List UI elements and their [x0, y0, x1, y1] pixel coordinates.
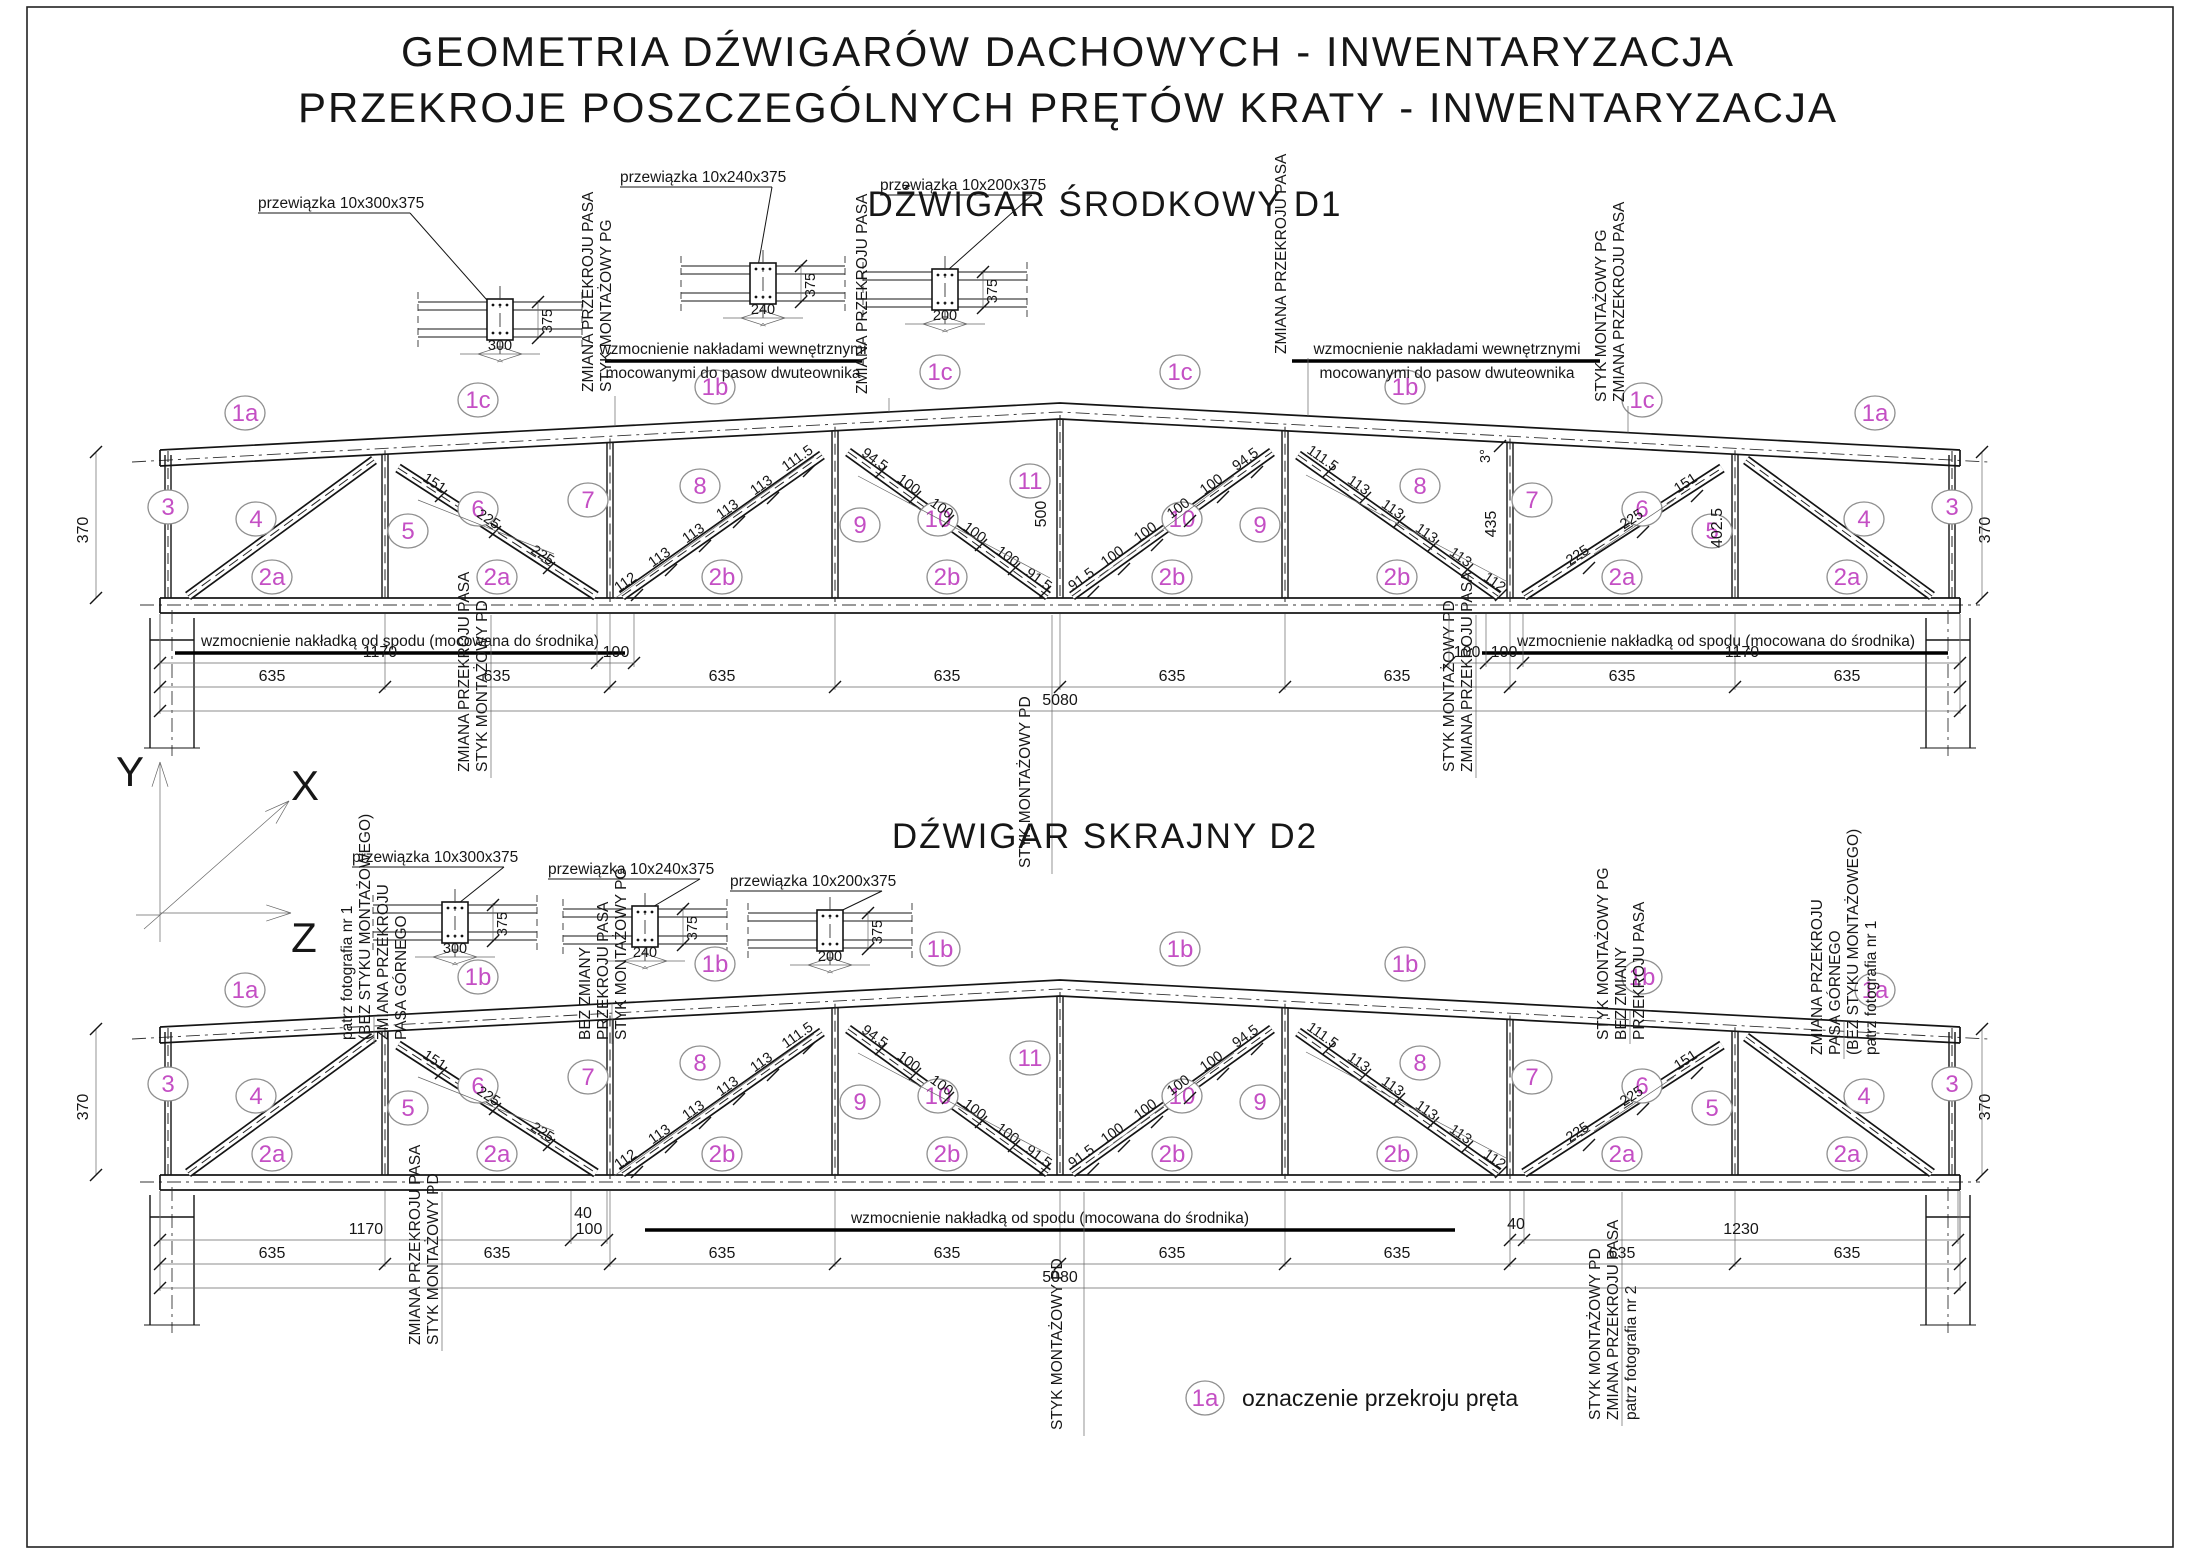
arrowhead: [497, 354, 522, 362]
reinforcement-note: mocowanymi do pasow dwuteownika: [605, 365, 860, 382]
dim-label: 635: [1609, 668, 1636, 685]
section-mark-label: 2b: [934, 564, 961, 591]
splice-note-line: PRZEKROJU PASA: [595, 901, 612, 1040]
dim-label: 100: [1098, 543, 1127, 570]
splice-note-line: (BEZ STYKU MONTAŻOWEGO): [356, 814, 374, 1040]
section-mark-label: 4: [249, 506, 262, 533]
bolt-dot: [506, 304, 509, 307]
section-mark-label: 2a: [259, 564, 286, 591]
total-span-dim: 5080: [1042, 692, 1078, 709]
batten-width-dim: 240: [633, 945, 657, 961]
section-mark-label: 5: [401, 518, 414, 545]
splice-note-line: STYK MONTAŻOWY PG: [612, 867, 630, 1040]
dim-label: 635: [484, 668, 511, 685]
section-mark-label: 9: [853, 512, 866, 539]
dim-label: 635: [259, 1245, 286, 1262]
dim-label: 1170: [349, 1221, 384, 1238]
batten-callout-label: przewiązka 10x240x375: [548, 861, 714, 878]
arrowhead: [266, 905, 291, 913]
callout-leader: [410, 213, 494, 308]
section-mark-label: 2b: [934, 1141, 961, 1168]
splice-note-line: STYK MONTAŻOWY PD: [473, 600, 491, 772]
dim-label: 635: [1159, 1245, 1186, 1262]
dim-label: 1170: [1725, 644, 1760, 661]
section-mark-label: 7: [1525, 1064, 1538, 1091]
batten-width-dim: 200: [933, 308, 957, 324]
slope-dim: 3°: [1478, 449, 1494, 463]
splice-note-line: BEZ ZMIANY: [577, 947, 594, 1040]
bolt-dot: [651, 911, 654, 914]
dim-label: 635: [1159, 668, 1186, 685]
arrowhead: [266, 913, 291, 921]
bolt-dot: [822, 943, 825, 946]
bolt-dot: [836, 915, 839, 918]
splice-note-line: ZMIANA PRZEKROJU PASA: [1459, 571, 1476, 772]
total-span-dim: 5080: [1042, 1269, 1078, 1286]
bolt-dot: [769, 296, 772, 299]
section-mark-label: 8: [1413, 473, 1426, 500]
splice-note-line: ZMIANA PRZEKROJU PASA: [854, 193, 871, 394]
dim-label: 1230: [1723, 1221, 1759, 1238]
section-mark-label: 2b: [709, 564, 736, 591]
dim-label: 635: [934, 668, 961, 685]
splice-note: STYK MONTAŻOWY PDZMIANA PRZEKROJU PASA: [1440, 571, 1476, 772]
arrowhead: [923, 324, 948, 332]
section-mark-label: 2a: [1834, 564, 1861, 591]
section-mark-label: 2a: [1609, 564, 1636, 591]
dim-label: 635: [259, 668, 286, 685]
section-mark-label: 2a: [484, 564, 511, 591]
bolt-dot: [637, 911, 640, 914]
splice-note-line: ZMIANA PRZEKROJU: [1809, 899, 1826, 1055]
dim-label: 370: [75, 517, 92, 544]
dim-label: 100: [1454, 644, 1481, 661]
batten-width-dim: 300: [488, 338, 512, 354]
section-mark-label: 3: [1945, 494, 1958, 521]
bolt-dot: [461, 907, 464, 910]
splice-note-line: STYK MONTAŻOWY PG: [1592, 229, 1610, 402]
batten-callout-label: przewiązka 10x240x375: [620, 169, 786, 186]
splice-note-line: patrz fotografia nr 1: [339, 906, 356, 1040]
splice-note: ZMIANA PRZEKROJU PASASTYK MONTAŻOWY PD: [407, 1144, 442, 1345]
axis-x: [160, 801, 289, 915]
splice-note: patrz fotografia nr 1(BEZ STYKU MONTAŻOW…: [339, 814, 410, 1040]
splice-note-line: ZMIANA PRZEKROJU PASA: [407, 1144, 424, 1345]
section-mark-label: 2b: [1384, 564, 1411, 591]
arrowhead: [160, 762, 168, 787]
section-mark-label: 1b: [465, 964, 492, 991]
bolt-dot: [951, 274, 954, 277]
section-mark-label: 5: [401, 1095, 414, 1122]
dim-label: 1170: [363, 644, 398, 661]
section-mark-label: 9: [1253, 512, 1266, 539]
axis-label-x: X: [291, 762, 319, 809]
dim-label: 500: [1033, 501, 1050, 528]
sheet-frame: [27, 7, 2173, 1547]
section-mark-label: 2b: [1159, 564, 1186, 591]
section-mark-label: 8: [693, 473, 706, 500]
batten-width-dim: 300: [443, 941, 467, 957]
section-mark-label: 11: [1018, 468, 1043, 495]
section-mark-label: 4: [1857, 1083, 1870, 1110]
section-mark-label: 1c: [1629, 387, 1654, 414]
arrowhead: [265, 801, 289, 812]
section-mark-label: 3: [1945, 1071, 1958, 1098]
drawing-sheet: GEOMETRIA DŹWIGARÓW DACHOWYCH - INWENTAR…: [0, 0, 2200, 1555]
batten-height-dim: 375: [495, 912, 511, 936]
splice-note: ZMIANA PRZEKROJU PASASTYK MONTAŻOWY PG: [580, 191, 615, 392]
axis-tail: [144, 915, 160, 929]
dim-label: 370: [1977, 517, 1994, 544]
splice-note-line: ZMIANA PRZEKROJU PASA: [456, 571, 473, 772]
section-mark-label: 2a: [259, 1141, 286, 1168]
section-mark-label: 4: [249, 1083, 262, 1110]
splice-note-line: STYK MONTAŻOWY PD: [1586, 1248, 1604, 1420]
section-mark-label: 2b: [1384, 1141, 1411, 1168]
section-mark-label: 1a: [232, 400, 259, 427]
drawing-title-line1: GEOMETRIA DŹWIGARÓW DACHOWYCH - INWENTAR…: [401, 28, 1735, 75]
callout-leader: [757, 187, 772, 272]
truss-drawing-canvas: GEOMETRIA DŹWIGARÓW DACHOWYCH - INWENTAR…: [0, 0, 2200, 1555]
batten-height-dim: 375: [985, 279, 1001, 303]
splice-note-line: ZMIANA PRZEKROJU: [375, 884, 392, 1040]
axis-label-z: Z: [291, 914, 317, 961]
bolt-dot: [937, 302, 940, 305]
reinforcement-note: wzmocnienie nakładami wewnętrznymi: [1312, 341, 1580, 358]
dim-label: 635: [1834, 668, 1861, 685]
dim-tick: [1583, 562, 1595, 574]
splice-note: ZMIANA PRZEKROJU PASA: [1273, 153, 1290, 354]
splice-note-line: STYK MONTAŻOWY PG: [597, 219, 615, 392]
arrowhead: [276, 801, 289, 824]
section-mark-label: 1b: [1392, 951, 1419, 978]
legend-text: oznaczenie przekroju pręta: [1242, 1385, 1518, 1411]
bolt-dot: [506, 332, 509, 335]
dim-label: 370: [1977, 1094, 1994, 1121]
arrowhead: [942, 324, 967, 332]
section-mark-label: 8: [693, 1050, 706, 1077]
section-mark-label: 1a: [1862, 400, 1889, 427]
splice-note-line: patrz fotografia nr 2: [1623, 1286, 1640, 1420]
section-mark-label: 3: [161, 1071, 174, 1098]
splice-note-line: PASA GÓRNEGO: [393, 915, 410, 1040]
section-mark-label: 5: [1705, 1095, 1718, 1122]
arrowhead: [152, 762, 160, 787]
section-mark-label: 7: [581, 487, 594, 514]
dim-label: 40: [574, 1205, 592, 1222]
dim-label: 100: [576, 1221, 603, 1238]
bolt-dot: [461, 935, 464, 938]
section-mark-label: 1b: [1167, 936, 1194, 963]
batten-callout-label: przewiązka 10x300x375: [352, 849, 518, 866]
section-mark-label: 2a: [1834, 1141, 1861, 1168]
batten-callout-label: przewiązka 10x200x375: [730, 873, 896, 890]
section-mark-label: 8: [1413, 1050, 1426, 1077]
section-mark-label: 7: [581, 1064, 594, 1091]
batten-height-dim: 375: [685, 916, 701, 940]
arrowhead: [808, 965, 833, 973]
section-mark-label: 2b: [709, 1141, 736, 1168]
arrowhead: [741, 318, 766, 326]
truss-title: DŹWIGAR SKRAJNY D2: [892, 817, 1318, 856]
section-mark-label: 1a: [232, 977, 259, 1004]
dim-label: 402.5: [1709, 508, 1726, 548]
dim-label: 635: [1384, 1245, 1411, 1262]
batten-width-dim: 200: [818, 949, 842, 965]
section-mark-label: 11: [1018, 1045, 1043, 1072]
arrowhead: [478, 354, 503, 362]
dim-label: 435: [1483, 511, 1500, 538]
dim-label: 635: [709, 668, 736, 685]
reinforcement-note: mocowanymi do pasow dwuteownika: [1319, 365, 1574, 382]
dim-label: 100: [603, 644, 630, 661]
splice-note-line: ZMIANA PRZEKROJU PASA: [1611, 201, 1628, 402]
dim-label: 635: [1834, 1245, 1861, 1262]
bolt-dot: [769, 268, 772, 271]
splice-note: STYK MONTAŻOWY PGBEZ ZMIANYPRZEKROJU PAS…: [1594, 867, 1648, 1040]
bolt-dot: [822, 915, 825, 918]
dim-tick: [1583, 1139, 1595, 1151]
section-mark-label: 1c: [1167, 359, 1192, 386]
reinforcement-note: wzmocnienie nakładką od spodu (mocowana …: [200, 633, 599, 650]
dim-label: 635: [709, 1245, 736, 1262]
batten-height-dim: 375: [540, 309, 556, 333]
dim-tick: [1637, 1103, 1649, 1115]
splice-note-line: BEZ ZMIANY: [1613, 947, 1630, 1040]
section-mark-label: 2b: [1159, 1141, 1186, 1168]
dim-label: 40: [1507, 1216, 1525, 1233]
batten-width-dim: 240: [751, 302, 775, 318]
bolt-dot: [492, 332, 495, 335]
dim-tick: [1637, 526, 1649, 538]
section-mark-label: 2a: [484, 1141, 511, 1168]
splice-note-line: STYK MONTAŻOWY PG: [1594, 867, 1612, 1040]
batten-height-dim: 375: [870, 920, 886, 944]
reinforcement-note: wzmocnienie nakładką od spodu (mocowana …: [850, 1210, 1249, 1227]
splice-note-line: STYK MONTAŻOWY PD: [424, 1173, 442, 1345]
reinforcement-note: wzmocnienie nakładami wewnętrznymi: [598, 341, 866, 358]
arrowhead: [642, 961, 667, 969]
bolt-dot: [637, 939, 640, 942]
arrowhead: [827, 965, 852, 973]
section-mark-label: 2a: [1609, 1141, 1636, 1168]
dim-label: 635: [934, 1245, 961, 1262]
section-mark-label: 1c: [927, 359, 952, 386]
splice-note-line: PRZEKROJU PASA: [1631, 901, 1648, 1040]
batten-callout-label: przewiązka 10x200x375: [880, 177, 1046, 194]
arrowhead: [433, 957, 458, 965]
dim-label: 370: [75, 1094, 92, 1121]
splice-note: ZMIANA PRZEKROJU PASA: [854, 193, 871, 394]
splice-note: BEZ ZMIANYPRZEKROJU PASASTYK MONTAŻOWY P…: [577, 867, 630, 1040]
dim-label: 635: [484, 1245, 511, 1262]
bolt-dot: [755, 268, 758, 271]
bolt-dot: [651, 939, 654, 942]
section-mark-label: 1c: [465, 387, 490, 414]
splice-note-line: patrz fotografia nr 1: [1863, 921, 1880, 1055]
axis-label-y: Y: [116, 748, 144, 795]
section-mark-label: 7: [1525, 487, 1538, 514]
section-mark-label: 3: [161, 494, 174, 521]
splice-note: ZMIANA PRZEKROJUPASA GÓRNEGO(BEZ STYKU M…: [1809, 829, 1880, 1055]
dim-label: 635: [1609, 1245, 1636, 1262]
bolt-dot: [755, 296, 758, 299]
section-mark-label: 9: [853, 1089, 866, 1116]
arrowhead: [760, 318, 785, 326]
section-mark-label: 1b: [702, 951, 729, 978]
bolt-dot: [836, 943, 839, 946]
bolt-dot: [951, 302, 954, 305]
splice-note-line: (BEZ STYKU MONTAŻOWEGO): [1844, 829, 1862, 1055]
batten-height-dim: 375: [803, 273, 819, 297]
section-mark-label: 9: [1253, 1089, 1266, 1116]
drawing-title-line2: PRZEKROJE POSZCZEGÓLNYCH PRĘTÓW KRATY - …: [298, 84, 1838, 131]
splice-note-line: PASA GÓRNEGO: [1827, 930, 1844, 1055]
dim-label: 100: [1491, 644, 1518, 661]
splice-note-line: ZMIANA PRZEKROJU PASA: [1273, 153, 1290, 354]
section-mark-label: 4: [1857, 506, 1870, 533]
splice-note: STYK MONTAŻOWY PGZMIANA PRZEKROJU PASA: [1592, 201, 1628, 402]
bolt-dot: [937, 274, 940, 277]
bolt-dot: [492, 304, 495, 307]
section-mark-label: 1b: [927, 936, 954, 963]
batten-callout-label: przewiązka 10x300x375: [258, 195, 424, 212]
reinforcement-note: wzmocnienie nakładką od spodu (mocowana …: [1516, 633, 1915, 650]
dim-label: 635: [1384, 668, 1411, 685]
splice-note-line: ZMIANA PRZEKROJU PASA: [580, 191, 597, 392]
legend-section-mark: 1a: [1192, 1385, 1219, 1412]
dim-label: 100: [1098, 1120, 1127, 1147]
bolt-dot: [447, 935, 450, 938]
bolt-dot: [447, 907, 450, 910]
